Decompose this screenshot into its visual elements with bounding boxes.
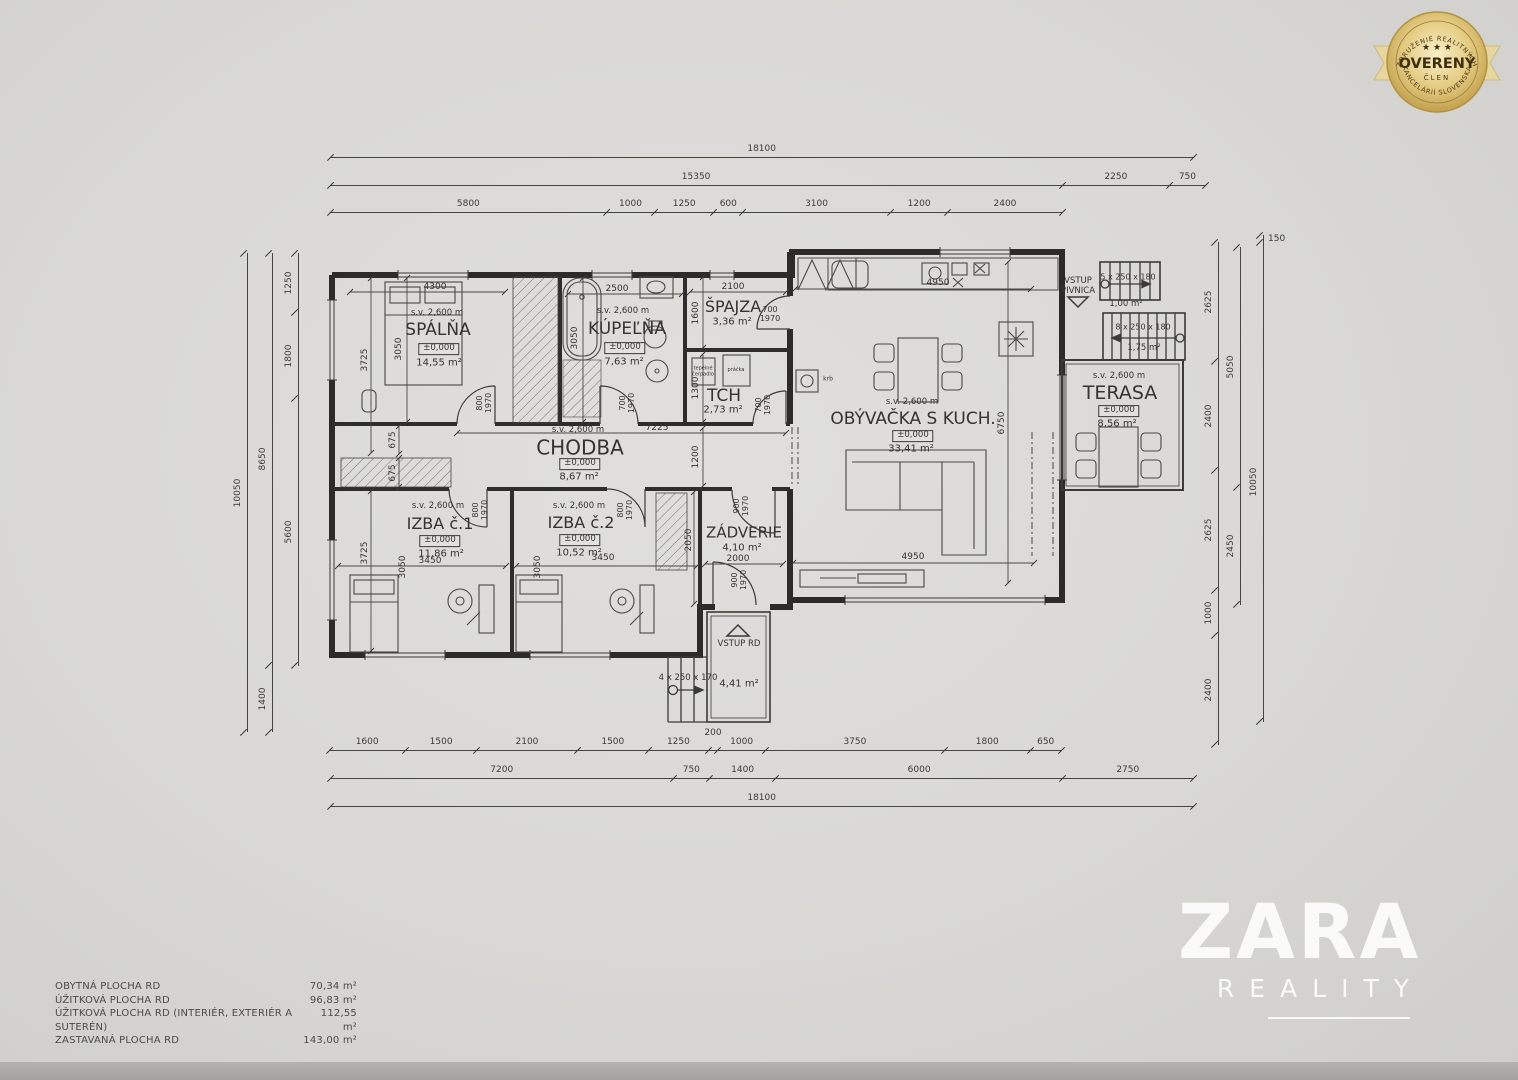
legend-value: 96,83 m² xyxy=(310,994,357,1008)
logo-name: ZARA xyxy=(1178,896,1412,968)
room-label-spajza: ŠPAJZA xyxy=(705,298,761,316)
dim-line xyxy=(247,253,248,732)
dim-label: 2625 xyxy=(1204,519,1214,542)
vstup-pivnica-label: VSTUP PIVNICA xyxy=(1061,277,1095,297)
dim-label: 650 xyxy=(1037,737,1054,747)
obyvacka-area: 33,41 m² xyxy=(888,443,934,455)
dim-label: 1200 xyxy=(908,199,931,209)
dim-door-kupelna: 700 1970 xyxy=(618,393,636,413)
chodba-ceiling-height: s.v. 2,600 m xyxy=(552,426,604,436)
legend-label: ÚŽITKOVÁ PLOCHA RD xyxy=(55,994,170,1008)
dim-label: 200 xyxy=(704,728,721,738)
dim-label: 600 xyxy=(720,199,737,209)
izba1-ceiling-height: s.v. 2,600 m xyxy=(412,502,464,512)
tch-heat-pump-label: tepelné čerpadlo xyxy=(692,366,714,378)
dim-label: 3100 xyxy=(805,199,828,209)
dim-line xyxy=(1263,235,1264,722)
dim-spalna-left: 3725 xyxy=(360,349,370,372)
legend-row: ÚŽITKOVÁ PLOCHA RD (INTERIÉR, EXTERIÉR A… xyxy=(55,1007,357,1034)
legend-label: OBYTNÁ PLOCHA RD xyxy=(55,980,160,994)
dim-kupelna-height: 3050 xyxy=(570,327,580,350)
izba2-level: ±0,000 xyxy=(559,534,600,546)
entry-porch-area: 4,41 m² xyxy=(719,678,758,690)
izba1-level: ±0,000 xyxy=(419,535,460,547)
legend-row: ZASTAVANÁ PLOCHA RD 143,00 m² xyxy=(55,1034,357,1048)
dim-line xyxy=(272,253,273,732)
dim-izba1-height: 3050 xyxy=(398,556,408,579)
zara-reality-watermark: ZARA REALITY xyxy=(1178,896,1412,1019)
dim-label: 5800 xyxy=(457,199,480,209)
dim-label: 18100 xyxy=(747,144,776,154)
dim-label: 1800 xyxy=(284,344,294,367)
logo-underline xyxy=(1268,1017,1410,1019)
area-legend: OBYTNÁ PLOCHA RD 70,34 m² ÚŽITKOVÁ PLOCH… xyxy=(55,980,357,1048)
legend-label: ÚŽITKOVÁ PLOCHA RD (INTERIÉR, EXTERIÉR A… xyxy=(55,1007,310,1034)
kupelna-ceiling-height: s.v. 2,600 m xyxy=(597,307,649,317)
dim-label: 1250 xyxy=(673,199,696,209)
legend-value: 70,34 m² xyxy=(310,980,357,994)
dim-label: 10050 xyxy=(233,478,243,507)
kupelna-level: ±0,000 xyxy=(604,342,645,354)
room-label-izba1: IZBA č.1 xyxy=(407,515,474,533)
dim-label: 7200 xyxy=(490,765,513,775)
spalna-level: ±0,000 xyxy=(418,343,459,355)
dim-zadverie-width: 2000 xyxy=(727,554,750,564)
tch-washer-label: práčka xyxy=(728,368,745,374)
terasa-level: ±0,000 xyxy=(1098,405,1139,417)
dim-line xyxy=(330,212,1062,213)
dim-door-spajza: 700 1970 xyxy=(760,305,780,323)
terasa-ceiling-height: s.v. 2,600 m xyxy=(1093,372,1145,382)
dim-door-tch: 700 1970 xyxy=(754,395,772,415)
dim-label: 750 xyxy=(683,765,700,775)
badge-stars: ★ ★ ★ xyxy=(1422,43,1452,53)
dim-obyvacka-height: 6750 xyxy=(997,412,1007,435)
dim-izba2-height: 3050 xyxy=(533,556,543,579)
dim-label: 1500 xyxy=(601,737,624,747)
stairs xyxy=(668,262,1185,722)
vstup-rd-label: VSTUP RD xyxy=(718,640,761,650)
dim-label: 2250 xyxy=(1104,172,1127,182)
badge-subtitle: ČLEN xyxy=(1424,73,1450,82)
dim-label: 1000 xyxy=(619,199,642,209)
dim-label: 2450 xyxy=(1226,535,1236,558)
dim-label: 2625 xyxy=(1204,290,1214,313)
dim-label: 8650 xyxy=(258,448,268,471)
room-label-spalna: SPÁLŇA xyxy=(405,321,470,341)
dim-door-spalna: 800 1970 xyxy=(475,393,493,413)
legend-value: 143,00 m² xyxy=(303,1034,357,1048)
dim-door-izba1: 800 1970 xyxy=(471,500,489,520)
dim-spajza-height: 1600 xyxy=(691,302,701,325)
dim-label: 2100 xyxy=(516,737,539,747)
dim-line xyxy=(1240,247,1241,605)
room-label-terasa: TERASA xyxy=(1083,383,1157,405)
dim-label: 1250 xyxy=(667,737,690,747)
dim-label: 10050 xyxy=(1249,468,1259,497)
room-label-izba2: IZBA č.2 xyxy=(548,514,615,532)
dim-izba1-width: 3450 xyxy=(419,556,442,566)
kupelna-area: 7,63 m² xyxy=(604,356,643,368)
obyvacka-level: ±0,000 xyxy=(892,430,933,442)
photo-of-floor-plan: ZDRUŽENIE REALITNÝCH KANCELÁRIÍ SLOVENSK… xyxy=(0,0,1518,1080)
dim-label: 1400 xyxy=(258,688,268,711)
dim-line xyxy=(329,750,1061,751)
dim-tch-height: 1300 xyxy=(691,377,701,400)
dim-line xyxy=(330,185,1205,186)
spalna-ceiling-height: s.v. 2,600 m xyxy=(411,309,463,319)
furniture xyxy=(350,258,1161,652)
dim-chodba-width: 7225 xyxy=(646,423,669,433)
legend-row: OBYTNÁ PLOCHA RD 70,34 m² xyxy=(55,980,357,994)
dim-label: 1400 xyxy=(731,765,754,775)
dim-chodba-height: 1200 xyxy=(691,446,701,469)
stair-entry-spec: 4 x 250 x 170 xyxy=(659,674,718,684)
chodba-level: ±0,000 xyxy=(559,458,600,470)
izba2-ceiling-height: s.v. 2,600 m xyxy=(553,502,605,512)
dim-label: 2400 xyxy=(1204,679,1214,702)
dim-label: 2400 xyxy=(1204,405,1214,428)
dim-label: 3750 xyxy=(843,737,866,747)
zadverie-area: 4,10 m² xyxy=(722,542,761,554)
dim-label: 15350 xyxy=(682,172,711,182)
dim-kitchen-width: 4950 xyxy=(927,278,950,288)
badge-title: OVERENÝ xyxy=(1399,54,1476,72)
dim-label: 150 xyxy=(1268,234,1285,244)
chodba-area: 8,67 m² xyxy=(559,471,598,483)
dim-spalna-left2: 675 xyxy=(388,431,398,448)
dim-spalna-height: 3050 xyxy=(394,338,404,361)
dim-line xyxy=(298,253,299,666)
dim-izba1-left: 3725 xyxy=(360,542,370,565)
dim-line xyxy=(330,157,1193,158)
obyvacka-ceiling-height: s.v. 2,600 m xyxy=(886,398,938,408)
dim-spalna-width: 4300 xyxy=(424,282,447,292)
legend-value: 112,55 m² xyxy=(310,1007,357,1034)
stair-upper-spec: 5 x 250 x 180 xyxy=(1100,272,1155,281)
room-label-obyvacka: OBÝVAČKA S KUCH. xyxy=(830,410,995,430)
dim-spajza-width: 2100 xyxy=(722,282,745,292)
photo-table-edge xyxy=(0,1062,1518,1080)
dim-line xyxy=(1218,242,1219,745)
overeny-clen-badge: ZDRUŽENIE REALITNÝCH KANCELÁRIÍ SLOVENSK… xyxy=(1374,12,1500,112)
dim-door-zadverie-bottom: 900 1970 xyxy=(730,570,748,590)
spajza-area: 3,36 m² xyxy=(712,316,751,328)
spalna-area: 14,55 m² xyxy=(416,357,462,369)
dim-line xyxy=(330,806,1193,807)
legend-label: ZASTAVANÁ PLOCHA RD xyxy=(55,1034,179,1048)
terasa-area: 8,56 m² xyxy=(1097,418,1136,430)
dim-label: 1000 xyxy=(730,737,753,747)
dim-obyvacka-width: 4950 xyxy=(902,552,925,562)
dim-label: 1600 xyxy=(356,737,379,747)
dim-label: 2400 xyxy=(994,199,1017,209)
dim-kupelna-width: 2500 xyxy=(606,284,629,294)
dim-izba1-left2: 675 xyxy=(388,464,398,481)
dim-label: 5600 xyxy=(284,521,294,544)
room-label-chodba: CHODBA xyxy=(536,437,624,460)
legend-row: ÚŽITKOVÁ PLOCHA RD 96,83 m² xyxy=(55,994,357,1008)
room-label-zadverie: ZÁDVERIE xyxy=(706,524,782,541)
stair-lower-spec: 8 x 250 x 180 xyxy=(1115,322,1170,331)
dim-label: 2750 xyxy=(1116,765,1139,775)
stair-lower-area: 1,75 m² xyxy=(1127,344,1160,354)
dim-line xyxy=(330,778,1193,779)
dim-label: 1250 xyxy=(284,271,294,294)
dim-label: 1500 xyxy=(430,737,453,747)
dim-door-izba2: 800 1970 xyxy=(616,500,634,520)
dim-label: 1000 xyxy=(1204,601,1214,624)
logo-subtitle: REALITY xyxy=(1178,974,1424,1003)
dim-label: 750 xyxy=(1179,172,1196,182)
dim-door-zadverie-top: 900 1970 xyxy=(732,496,750,516)
dim-label: 5050 xyxy=(1226,356,1236,379)
tch-area: 2,73 m² xyxy=(703,404,742,416)
dim-label: 1800 xyxy=(976,737,999,747)
dim-label: 18100 xyxy=(747,793,776,803)
room-label-kupelna: KÚPEĽŇA xyxy=(588,320,666,340)
dim-zadverie-height: 2050 xyxy=(684,529,694,552)
fireplace-label: krb xyxy=(823,377,833,384)
dim-label: 6000 xyxy=(908,765,931,775)
dim-izba2-width: 3450 xyxy=(592,553,615,563)
stair-upper-area: 1,00 m² xyxy=(1109,300,1142,310)
